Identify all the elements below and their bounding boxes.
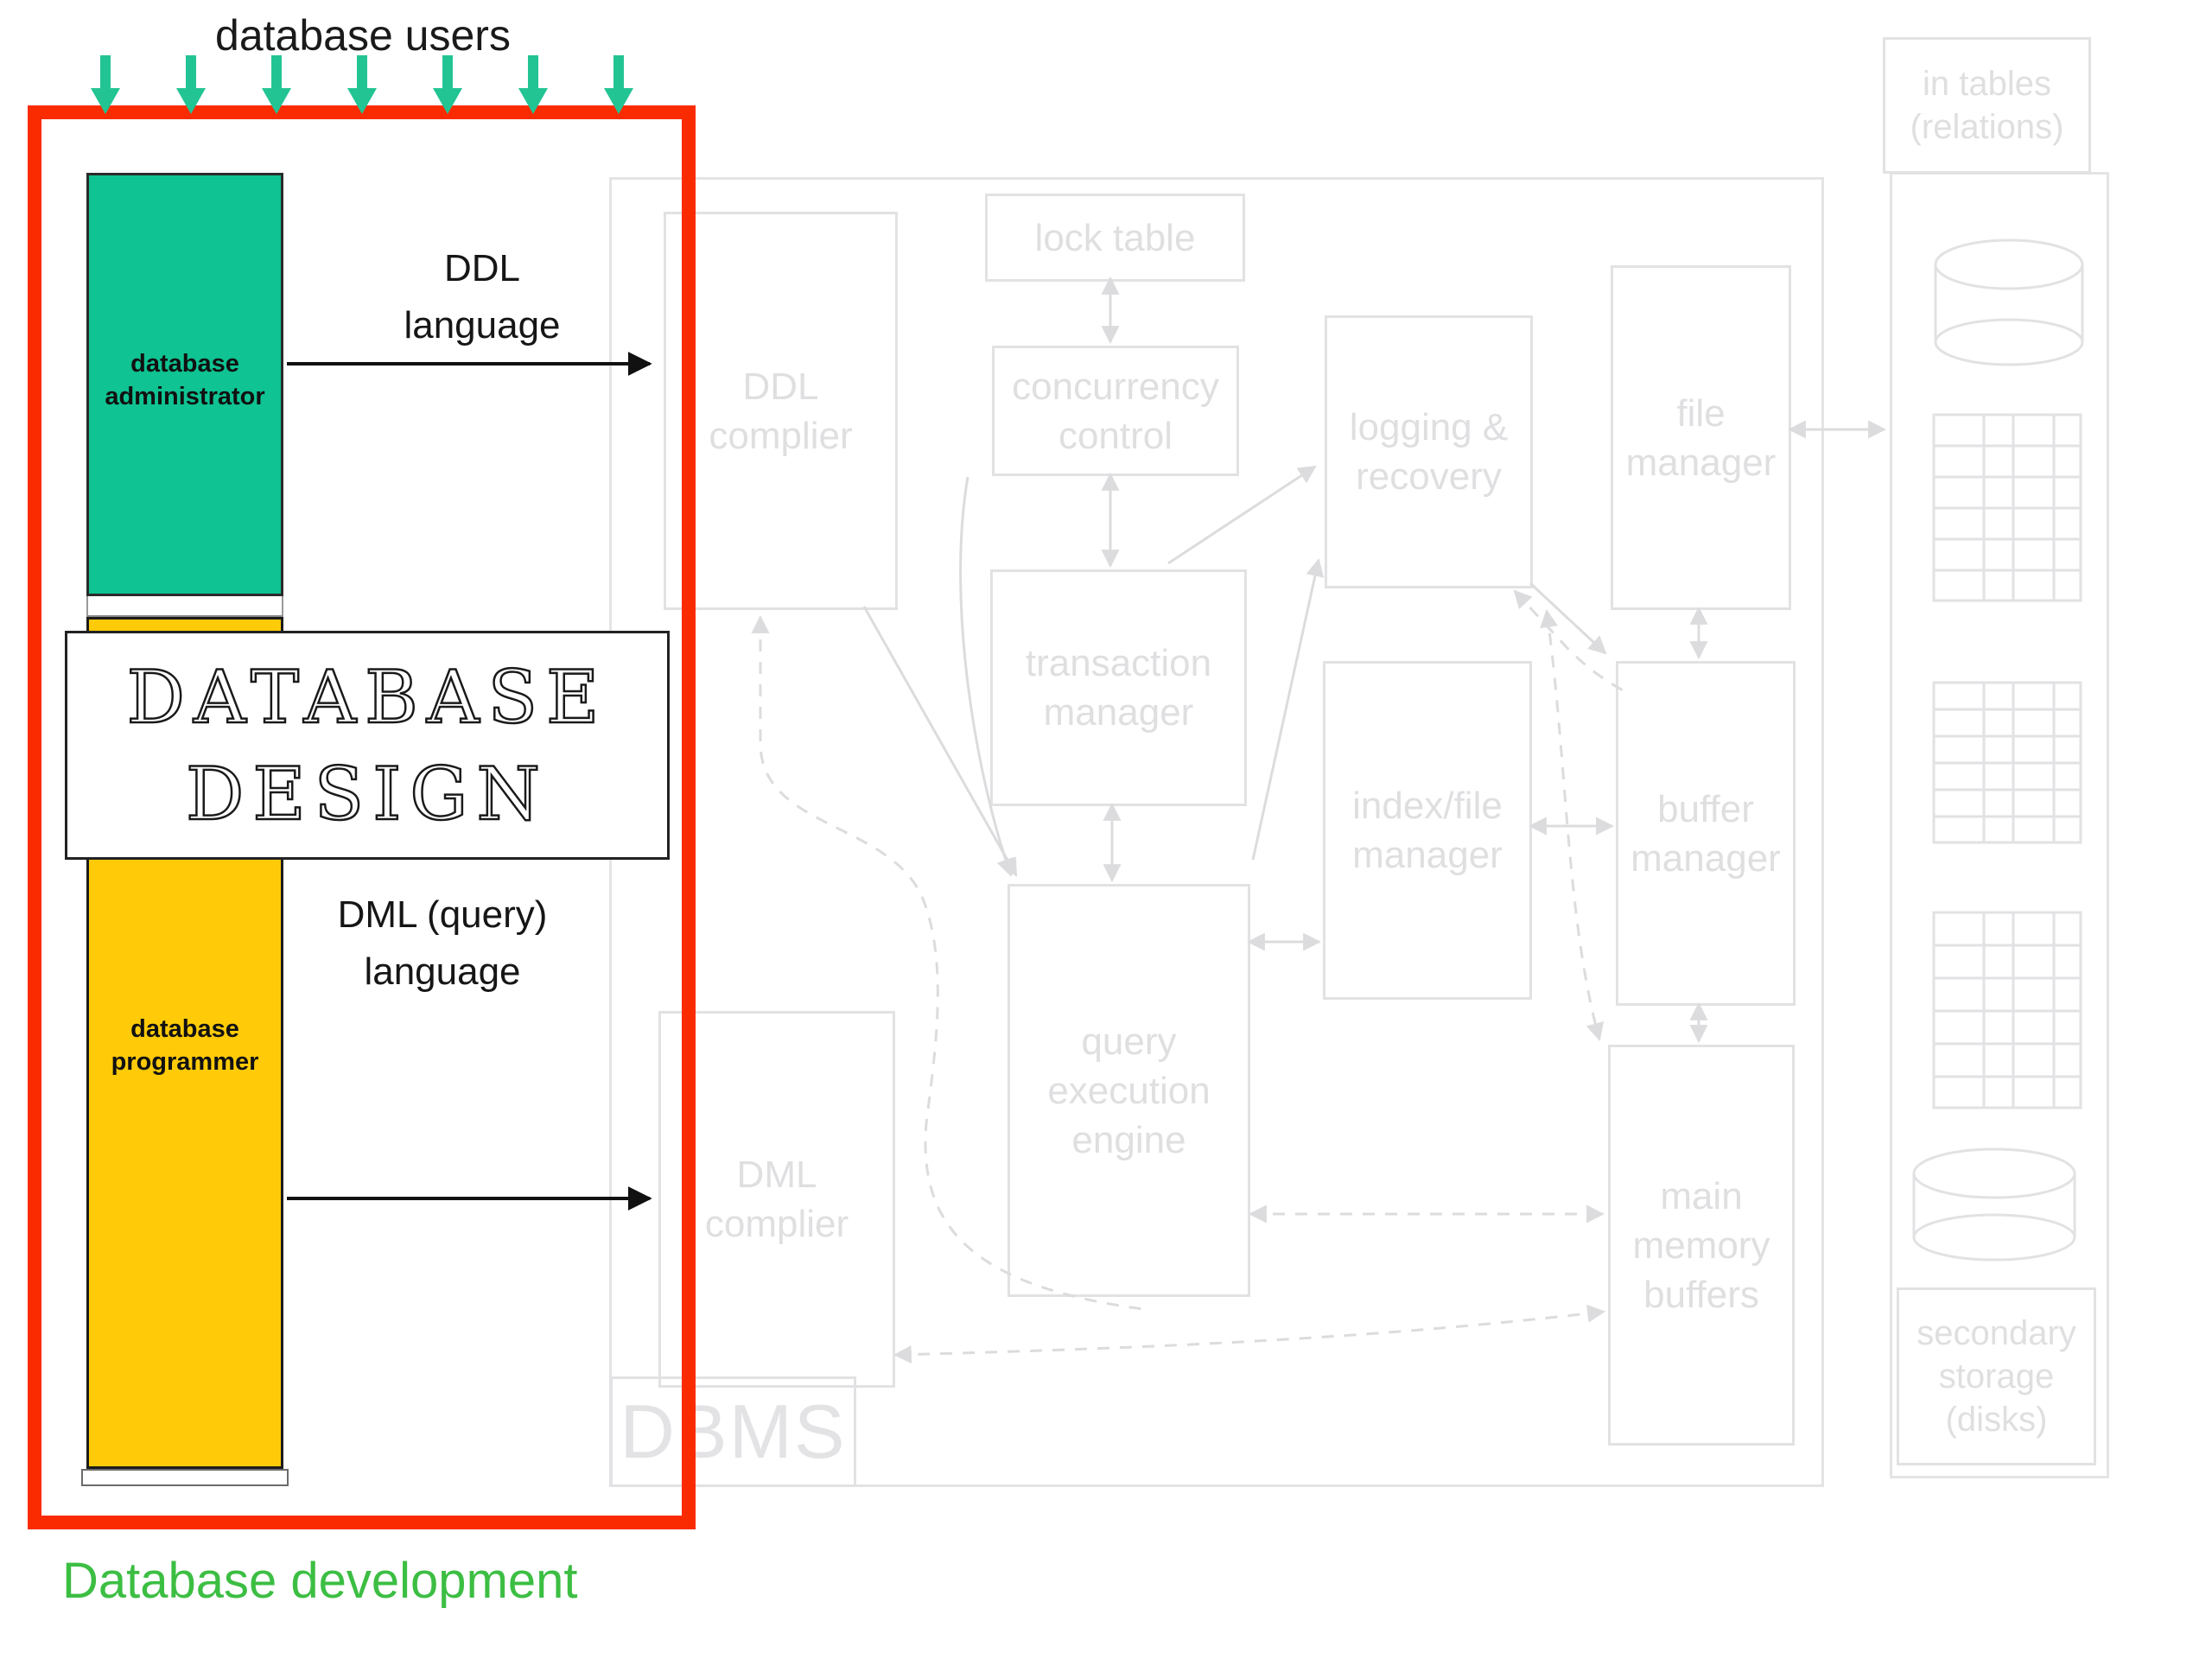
database-design-box: DATABASE DESIGN (65, 631, 670, 860)
user-arrow-icon (518, 55, 548, 114)
ddl-language-label: DDL language (353, 240, 612, 354)
user-arrow-icon (262, 55, 291, 114)
user-arrow-icon (433, 55, 462, 114)
slide-canvas: in tables (relations) secondary storage … (0, 0, 2212, 1659)
user-arrow-icon (347, 55, 377, 114)
user-arrow-icon (604, 55, 633, 114)
user-arrow-icon (176, 55, 206, 114)
database-users-title: database users (173, 10, 553, 60)
database-design-title: DATABASE DESIGN (127, 649, 608, 842)
user-arrow-icon (91, 55, 120, 114)
database-development-caption: Database development (62, 1552, 840, 1610)
user-arrows (91, 55, 633, 114)
dml-language-label: DML (query) language (304, 887, 581, 1001)
